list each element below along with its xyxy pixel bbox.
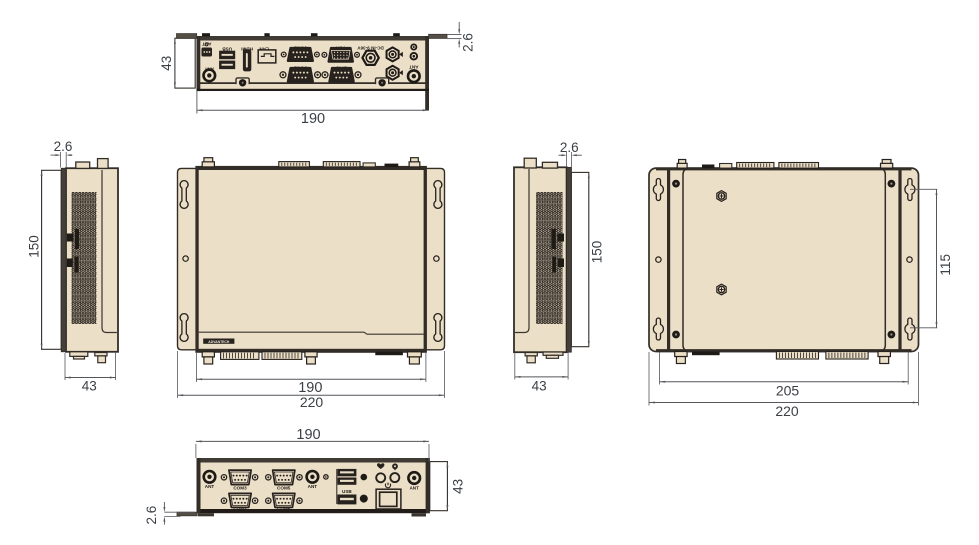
svg-text:COM5: COM5 [277,485,291,490]
svg-text:ANT: ANT [409,64,419,69]
svg-text:COM3: COM3 [233,485,247,490]
svg-text:43: 43 [159,56,174,71]
svg-text:43: 43 [82,378,97,393]
svg-text:2.6: 2.6 [461,33,476,52]
svg-text:COM4: COM4 [233,506,247,511]
svg-text:USB: USB [342,489,352,494]
svg-text:220: 220 [300,394,324,410]
svg-text:2.6: 2.6 [144,506,159,525]
svg-text:2.6: 2.6 [560,140,579,155]
svg-text:43: 43 [450,479,465,494]
svg-text:115: 115 [938,254,953,276]
svg-text:205: 205 [776,382,800,398]
svg-text:2.6: 2.6 [54,139,73,154]
svg-text:ANT: ANT [308,484,318,489]
svg-text:190: 190 [301,111,325,127]
svg-text:150: 150 [590,241,605,264]
svg-text:150: 150 [27,235,42,258]
svg-text:COM6: COM6 [277,506,291,511]
svg-text:ADVANTECH: ADVANTECH [208,340,230,344]
svg-text:43: 43 [532,378,547,393]
svg-text:190: 190 [296,427,320,443]
svg-text:ANT: ANT [205,484,215,489]
svg-text:220: 220 [775,403,799,419]
svg-text:ANT: ANT [409,485,419,490]
